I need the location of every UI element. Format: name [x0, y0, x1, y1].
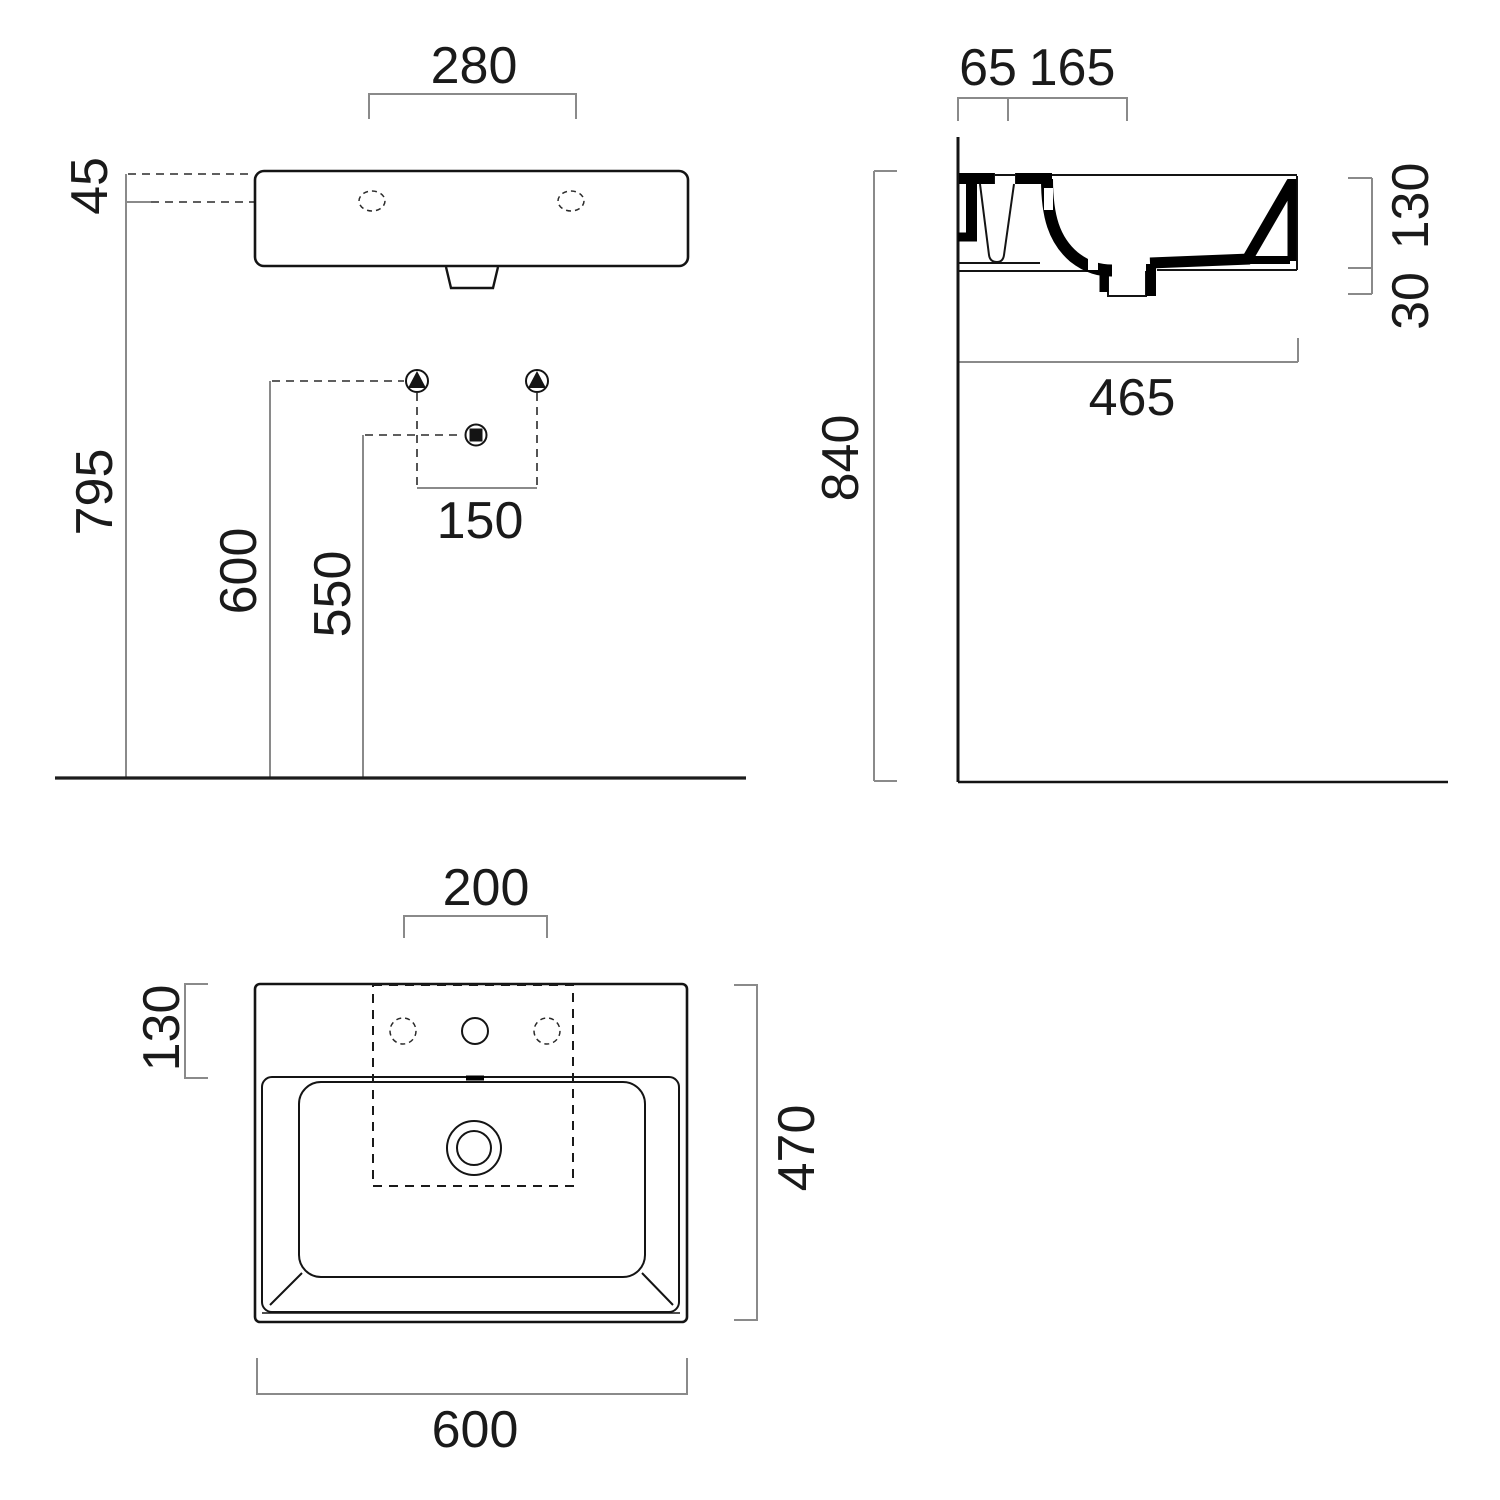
dim-plan-deck-depth: 130: [136, 985, 188, 1072]
basin-plan-outer: [255, 984, 687, 1322]
dim-side-underside-drop: 30: [1385, 272, 1437, 330]
dim-bracket-65-165: [958, 98, 1127, 121]
dim-side-back-shelf: 165: [1029, 42, 1116, 94]
dim-bracket-280: [369, 94, 576, 119]
plan-view: [185, 916, 757, 1394]
technical-drawing-washbasin: 280 45 795 600 550 150 65 165 130 30 465…: [0, 0, 1500, 1500]
fixing-symbols: [406, 370, 548, 446]
dim-front-rim-height: 795: [69, 449, 121, 536]
dim-plan-overall-depth: 470: [771, 1105, 823, 1192]
dim-side-rim-depth: 130: [1385, 163, 1437, 250]
drain-pipe-outline: [1108, 271, 1146, 296]
bowl-bottom-cut: [1150, 259, 1250, 263]
dim-side-total-depth: 465: [1089, 372, 1176, 424]
dim-side-wall-ledge: 65: [959, 42, 1017, 94]
dim-side-rim-floor-height: 840: [815, 415, 867, 502]
side-view: [874, 98, 1448, 782]
drain-outlet-front: [446, 267, 498, 288]
bowl-front-slope-cut: [1248, 182, 1292, 258]
basin-front-outline: [255, 171, 688, 266]
drawing-linework: [0, 0, 1500, 1500]
dim-front-drain-height: 550: [307, 551, 359, 638]
dim-front-bracket-height: 600: [213, 528, 265, 615]
dim-front-faucet-spacing: 280: [431, 40, 518, 92]
section-cut-heavy: [958, 179, 1292, 297]
dim-bracket-600: [257, 1358, 687, 1394]
dim-bracket-470: [734, 985, 757, 1320]
drain-flange-notch: [1088, 259, 1098, 270]
front-view: [55, 94, 746, 778]
dim-plan-overall-width: 600: [432, 1404, 519, 1456]
dim-front-bracket-spacing: 150: [437, 495, 524, 547]
bowl-back-cut-curve: [1047, 179, 1112, 271]
section-thin-outlines: [958, 173, 1297, 296]
drain-symbol-square: [470, 429, 483, 442]
dim-front-rim-to-hole: 45: [64, 157, 116, 215]
mounting-pocket-outline: [980, 184, 1014, 262]
dim-bracket-465: [958, 338, 1298, 362]
fixing-pocket-notch: [1044, 188, 1053, 210]
dim-plan-template-width: 200: [443, 862, 530, 914]
dim-bracket-200: [404, 916, 547, 938]
